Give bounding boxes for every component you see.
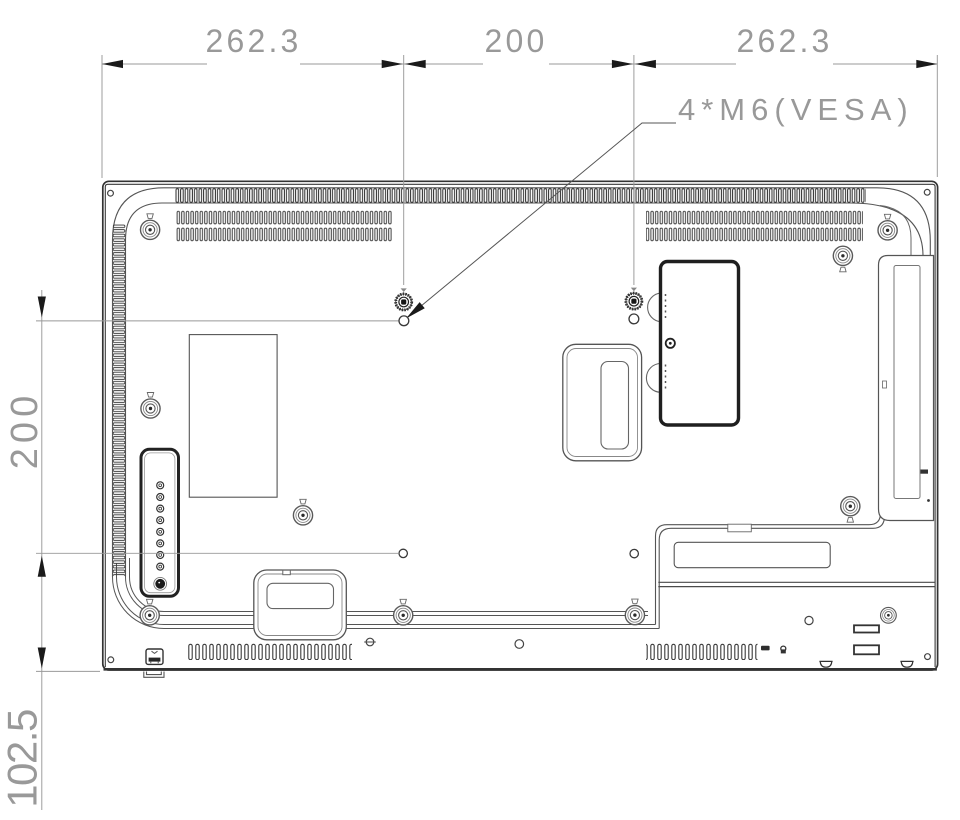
svg-text:102.5: 102.5 bbox=[0, 710, 46, 808]
svg-text:200: 200 bbox=[485, 23, 548, 59]
svg-text:262.3: 262.3 bbox=[205, 23, 301, 59]
svg-text:200: 200 bbox=[4, 391, 46, 469]
svg-text:4*M6(VESA): 4*M6(VESA) bbox=[678, 92, 914, 127]
svg-text:262.3: 262.3 bbox=[736, 23, 832, 59]
